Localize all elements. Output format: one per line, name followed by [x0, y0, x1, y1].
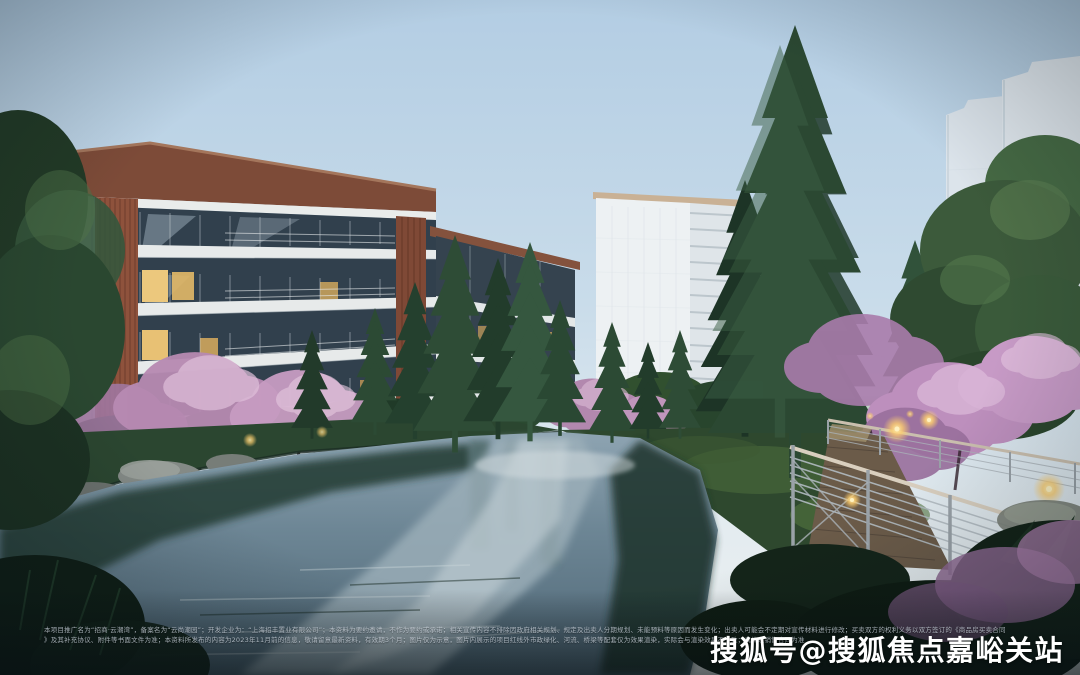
watermark-sohu: 搜狐号@搜狐焦点嘉峪关站 [710, 629, 1064, 669]
rendering-image: 本项目推广名为“招商·云潮湾”，备案名为“云尚潮园”；开发企业为：“上海招丰置业… [0, 0, 1080, 675]
vignette [0, 0, 1080, 675]
scene-architectural-rendering [0, 0, 1080, 675]
